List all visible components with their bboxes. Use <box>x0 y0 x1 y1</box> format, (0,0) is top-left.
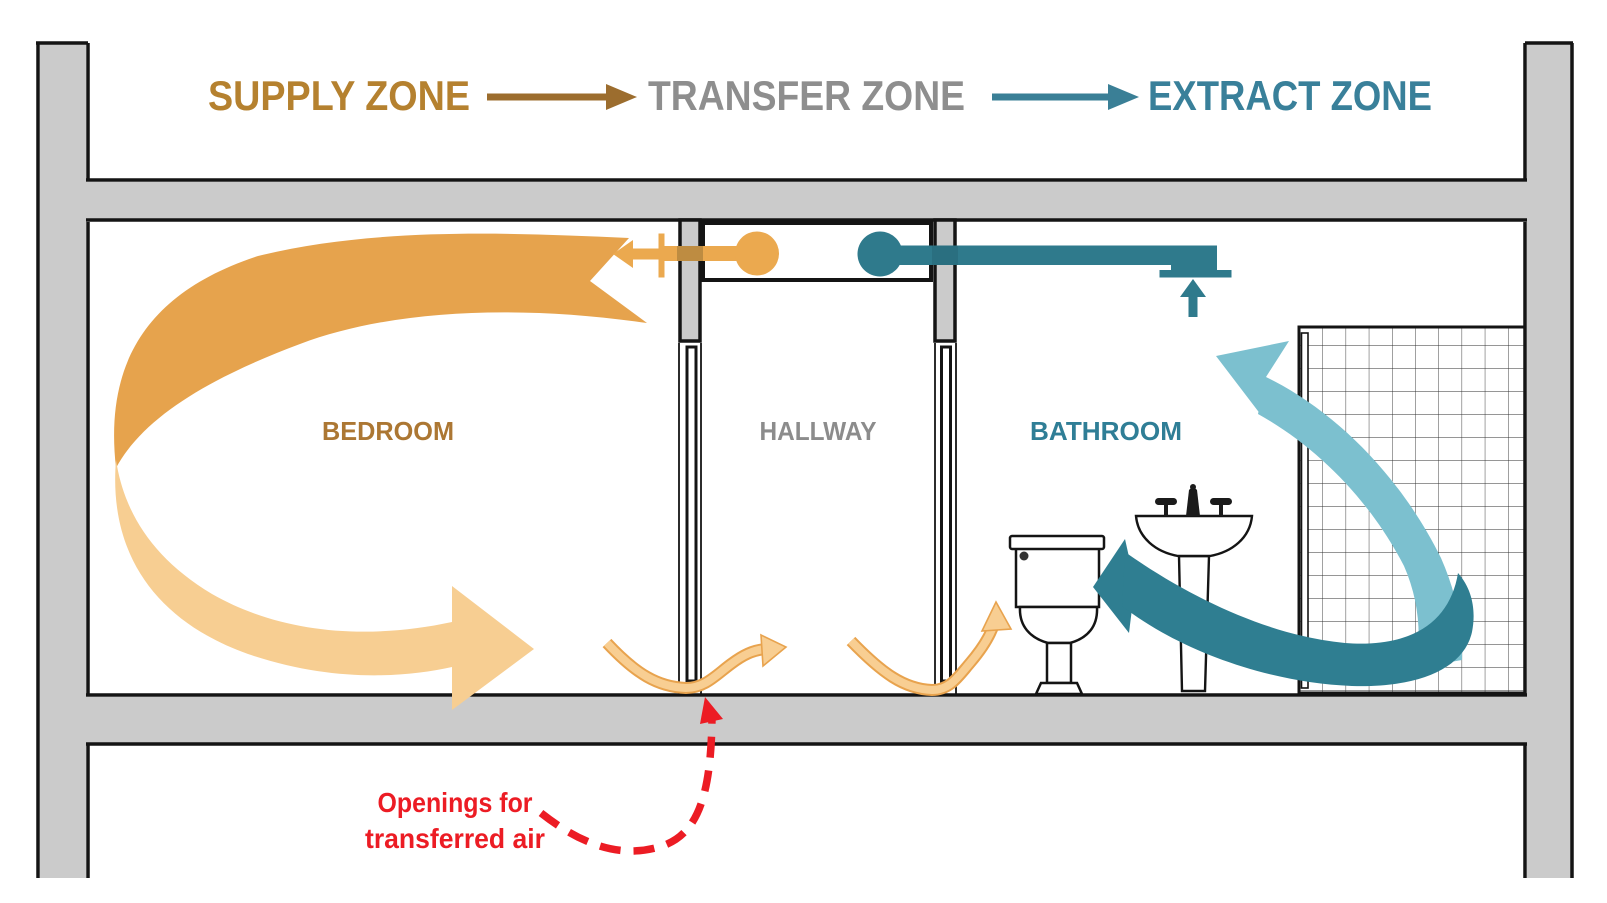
ceiling-wall <box>86 182 1527 220</box>
bathroom-door-leaf <box>942 347 951 681</box>
toilet <box>1010 536 1104 694</box>
toilet-tank-lid <box>1010 536 1104 549</box>
callout-text-line1: Openings for <box>378 787 533 818</box>
hallway-structure <box>679 220 956 694</box>
bedroom-label: BEDROOM <box>322 416 454 446</box>
extract-zone-label: EXTRACT ZONE <box>1148 72 1432 119</box>
toilet-stem <box>1047 643 1071 683</box>
room-labels: BEDROOM HALLWAY BATHROOM <box>322 416 1182 446</box>
supply-duct-wall-overlap <box>677 246 703 261</box>
toilet-bowl <box>1020 607 1097 643</box>
ribbon-bedroom-arrowhead <box>761 635 786 666</box>
right-wall <box>1527 43 1571 878</box>
hallway-label: HALLWAY <box>760 416 877 446</box>
door-frames <box>679 343 956 694</box>
extract-grille-flange <box>1160 270 1232 278</box>
supply-zone-label: SUPPLY ZONE <box>208 72 470 119</box>
supply-circulation-arrow <box>114 234 647 710</box>
transfer-to-extract-arrow-icon <box>992 84 1139 110</box>
extract-fan-icon <box>858 232 903 277</box>
toilet-flush-handle <box>1020 552 1029 561</box>
bedroom-door-leaf <box>687 347 696 681</box>
toilet-tank <box>1016 548 1099 607</box>
supply-to-transfer-arrow-icon <box>487 84 637 110</box>
ventilation-zones-diagram: Openings for transferred air SUPPLY ZONE… <box>0 0 1607 903</box>
shower-glass-panel <box>1302 333 1309 688</box>
transfer-zone-label: TRANSFER ZONE <box>648 72 965 119</box>
sink-basin <box>1136 516 1252 556</box>
ribbon-hallway-arrowhead <box>982 602 1011 631</box>
supply-fan-icon <box>735 232 779 276</box>
left-wall <box>40 43 86 878</box>
supply-arc-lower <box>115 460 534 710</box>
sink-faucet-icon <box>1155 484 1232 516</box>
toilet-base <box>1036 683 1082 694</box>
floor-slab <box>86 697 1527 743</box>
callout-text-line2: transferred air <box>365 823 545 854</box>
extract-duct-wall-overlap <box>932 246 958 266</box>
bedroom-door-post <box>680 220 700 341</box>
legend-header: SUPPLY ZONE TRANSFER ZONE EXTRACT ZONE <box>208 72 1432 119</box>
extract-inlet-arrow-icon <box>1180 279 1206 317</box>
bathroom-label: BATHROOM <box>1030 416 1182 446</box>
bathroom-door-post <box>935 220 955 341</box>
ribbon-hallway <box>851 624 994 690</box>
